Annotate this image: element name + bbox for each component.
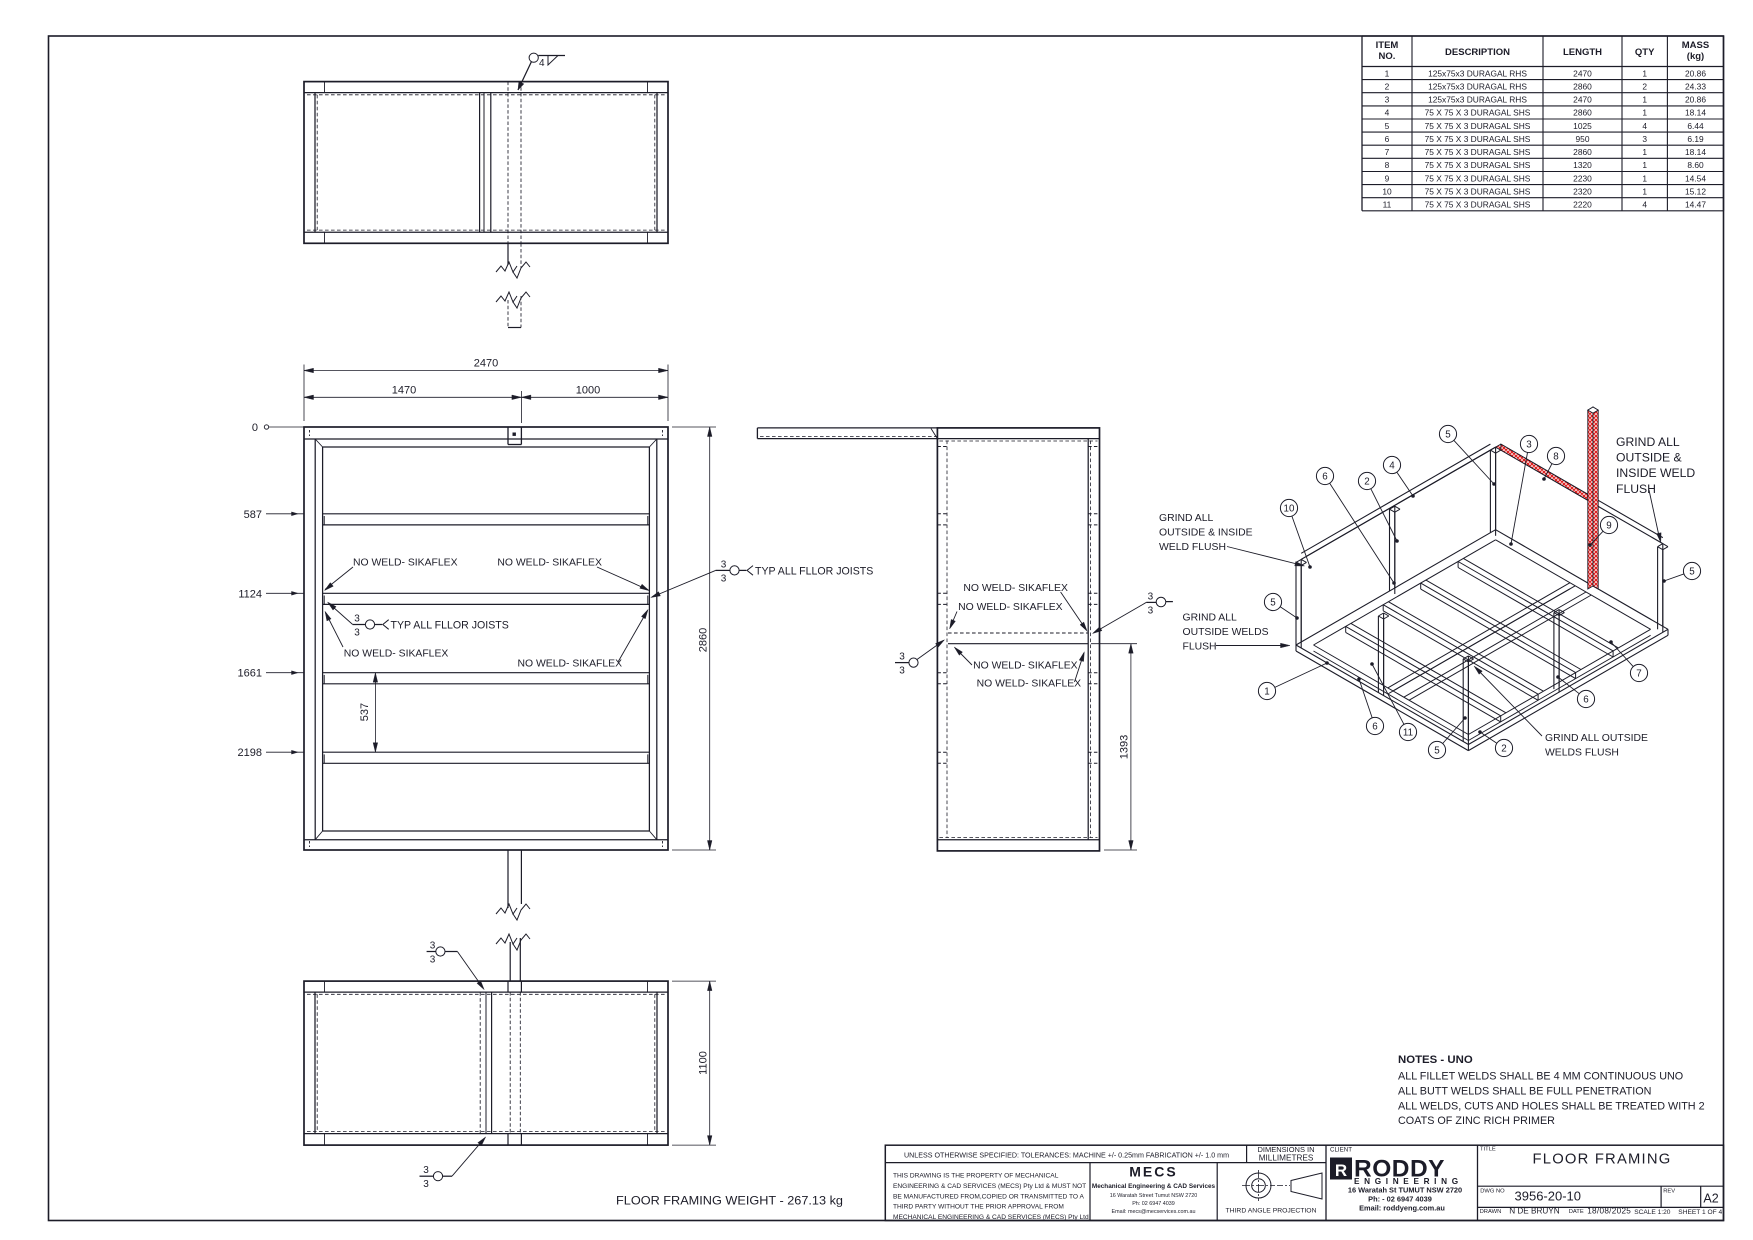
svg-text:18/08/2025: 18/08/2025 xyxy=(1587,1206,1631,1215)
svg-text:1: 1 xyxy=(1385,68,1390,78)
svg-text:ENGINEERING & CAD SERVICES (ME: ENGINEERING & CAD SERVICES (MECS) Pty Lt… xyxy=(893,1183,1086,1190)
svg-text:1: 1 xyxy=(1642,160,1647,170)
svg-text:1: 1 xyxy=(1642,108,1647,118)
svg-text:125x75x3 DURAGAL RHS: 125x75x3 DURAGAL RHS xyxy=(1428,95,1527,105)
svg-text:NOTES - UNO: NOTES - UNO xyxy=(1398,1054,1473,1066)
svg-text:FLOOR FRAMING: FLOOR FRAMING xyxy=(1533,1152,1672,1168)
svg-text:950: 950 xyxy=(1576,134,1590,144)
svg-text:5: 5 xyxy=(1434,746,1440,757)
svg-text:9: 9 xyxy=(1385,173,1390,183)
svg-text:UNLESS OTHERWISE SPECIFIED: TO: UNLESS OTHERWISE SPECIFIED: TOLERANCES: … xyxy=(904,1152,1229,1159)
svg-text:2470: 2470 xyxy=(474,358,498,370)
svg-text:2230: 2230 xyxy=(1573,173,1592,183)
svg-text:3: 3 xyxy=(423,1179,429,1190)
svg-text:4: 4 xyxy=(1389,461,1395,472)
svg-text:3: 3 xyxy=(354,628,360,639)
svg-text:SHEET 1 OF 4: SHEET 1 OF 4 xyxy=(1678,1209,1722,1216)
svg-text:GRIND ALL: GRIND ALL xyxy=(1616,435,1680,449)
svg-text:2: 2 xyxy=(1364,477,1369,488)
svg-text:WELDS FLUSH: WELDS FLUSH xyxy=(1545,748,1619,759)
svg-text:MECHANICAL ENGINEERING & CAD S: MECHANICAL ENGINEERING & CAD SERVICES (M… xyxy=(893,1214,1089,1221)
svg-text:3: 3 xyxy=(354,614,360,625)
svg-text:0: 0 xyxy=(252,422,258,434)
svg-text:GRIND ALL OUTSIDE: GRIND ALL OUTSIDE xyxy=(1545,733,1648,744)
svg-text:WELD FLUSH: WELD FLUSH xyxy=(1159,542,1226,553)
svg-text:3956-20-10: 3956-20-10 xyxy=(1515,1189,1582,1204)
svg-text:1: 1 xyxy=(1642,95,1647,105)
svg-text:DATE: DATE xyxy=(1569,1209,1584,1215)
svg-text:NO WELD- SIKAFLEX: NO WELD- SIKAFLEX xyxy=(958,602,1063,613)
svg-text:CLIENT: CLIENT xyxy=(1330,1146,1352,1153)
svg-text:75 X 75 X 3 DURAGAL SHS: 75 X 75 X 3 DURAGAL SHS xyxy=(1425,173,1531,183)
svg-text:1: 1 xyxy=(1642,68,1647,78)
svg-text:TYP ALL FLLOR JOISTS: TYP ALL FLLOR JOISTS xyxy=(391,619,509,631)
svg-text:3: 3 xyxy=(1526,440,1532,451)
svg-text:N DE BRUYN: N DE BRUYN xyxy=(1509,1206,1560,1215)
svg-text:1: 1 xyxy=(1264,687,1269,698)
svg-text:125x75x3 DURAGAL RHS: 125x75x3 DURAGAL RHS xyxy=(1428,81,1527,91)
svg-text:A2: A2 xyxy=(1703,1192,1718,1206)
svg-text:6: 6 xyxy=(1322,472,1328,483)
svg-text:15.12: 15.12 xyxy=(1685,186,1706,196)
svg-text:7: 7 xyxy=(1636,669,1641,680)
svg-text:8: 8 xyxy=(1553,452,1559,463)
svg-text:NO WELD- SIKAFLEX: NO WELD- SIKAFLEX xyxy=(963,583,1068,594)
svg-text:MECS: MECS xyxy=(1129,1164,1177,1180)
svg-text:Email: mecs@mecservices.com.au: Email: mecs@mecservices.com.au xyxy=(1112,1209,1196,1215)
svg-text:20.86: 20.86 xyxy=(1685,68,1706,78)
svg-text:10: 10 xyxy=(1382,186,1392,196)
svg-text:QTY: QTY xyxy=(1635,47,1655,58)
svg-text:MILLIMETRES: MILLIMETRES xyxy=(1259,1154,1314,1163)
svg-text:18.14: 18.14 xyxy=(1685,108,1706,118)
svg-text:FLUSH: FLUSH xyxy=(1183,642,1217,653)
svg-text:6.44: 6.44 xyxy=(1687,121,1704,131)
svg-text:NO WELD- SIKAFLEX: NO WELD- SIKAFLEX xyxy=(518,659,623,670)
svg-text:5: 5 xyxy=(1270,598,1276,609)
svg-text:16 Waratah St TUMUT NSW 2720: 16 Waratah St TUMUT NSW 2720 xyxy=(1348,1186,1462,1195)
svg-text:3: 3 xyxy=(1148,591,1154,602)
svg-text:2: 2 xyxy=(1385,81,1390,91)
svg-text:2: 2 xyxy=(1642,81,1647,91)
svg-text:9: 9 xyxy=(1606,521,1611,532)
svg-text:1393: 1393 xyxy=(1119,735,1131,759)
svg-text:1124: 1124 xyxy=(238,588,262,600)
svg-text:Ph: 02 6947 4039: Ph: 02 6947 4039 xyxy=(1132,1201,1175,1207)
svg-text:6: 6 xyxy=(1583,695,1589,706)
svg-text:1: 1 xyxy=(1642,186,1647,196)
svg-text:NO WELD- SIKAFLEX: NO WELD- SIKAFLEX xyxy=(344,649,449,660)
svg-text:THIRD PARTY WITHOUT THE PRIOR: THIRD PARTY WITHOUT THE PRIOR APPROVAL F… xyxy=(893,1204,1064,1211)
svg-text:Email: roddyeng.com.au: Email: roddyeng.com.au xyxy=(1359,1204,1445,1213)
svg-text:75 X 75 X 3 DURAGAL SHS: 75 X 75 X 3 DURAGAL SHS xyxy=(1425,121,1531,131)
svg-text:LENGTH: LENGTH xyxy=(1563,47,1602,58)
svg-text:GRIND ALL: GRIND ALL xyxy=(1159,513,1214,524)
svg-text:6: 6 xyxy=(1372,722,1378,733)
svg-text:75 X 75 X 3 DURAGAL SHS: 75 X 75 X 3 DURAGAL SHS xyxy=(1425,200,1531,210)
svg-text:24.33: 24.33 xyxy=(1685,81,1706,91)
svg-text:16 Waratah Street Tumut NSW 27: 16 Waratah Street Tumut NSW 2720 xyxy=(1110,1193,1198,1199)
svg-text:ALL FILLET WELDS SHALL BE 4 MM: ALL FILLET WELDS SHALL BE 4 MM CONTINUOU… xyxy=(1398,1071,1683,1083)
svg-text:GRIND ALL: GRIND ALL xyxy=(1183,613,1238,624)
svg-text:2860: 2860 xyxy=(1573,108,1592,118)
svg-text:1661: 1661 xyxy=(238,668,262,680)
svg-text:OUTSIDE & INSIDE: OUTSIDE & INSIDE xyxy=(1159,528,1253,539)
svg-text:Ph: - 02 6947 4039: Ph: - 02 6947 4039 xyxy=(1368,1195,1432,1204)
svg-text:14.54: 14.54 xyxy=(1685,173,1706,183)
svg-text:75 X 75 X 3 DURAGAL SHS: 75 X 75 X 3 DURAGAL SHS xyxy=(1425,108,1531,118)
svg-text:2470: 2470 xyxy=(1573,68,1592,78)
svg-text:R: R xyxy=(1335,1161,1347,1180)
svg-text:3: 3 xyxy=(721,573,727,584)
svg-text:10: 10 xyxy=(1284,504,1295,515)
svg-text:NO WELD- SIKAFLEX: NO WELD- SIKAFLEX xyxy=(497,558,602,569)
svg-text:11: 11 xyxy=(1383,200,1392,210)
svg-text:11: 11 xyxy=(1403,728,1413,739)
svg-text:FLOOR FRAMING WEIGHT - 267.: FLOOR FRAMING WEIGHT - 267.13 kg xyxy=(616,1194,843,1208)
svg-text:ITEM: ITEM xyxy=(1376,40,1399,51)
svg-text:3: 3 xyxy=(423,1165,429,1176)
svg-text:REV: REV xyxy=(1663,1188,1675,1194)
svg-text:2860: 2860 xyxy=(1573,147,1592,157)
svg-text:1025: 1025 xyxy=(1573,121,1592,131)
svg-text:DWG NO: DWG NO xyxy=(1480,1188,1505,1194)
svg-text:1: 1 xyxy=(1642,173,1647,183)
svg-text:1470: 1470 xyxy=(392,384,416,396)
svg-text:COATS OF ZINC RICH PRIMER: COATS OF ZINC RICH PRIMER xyxy=(1398,1115,1555,1127)
svg-text:2: 2 xyxy=(1501,744,1506,755)
svg-text:(kg): (kg) xyxy=(1687,51,1704,62)
svg-text:TYP ALL FLLOR JOISTS: TYP ALL FLLOR JOISTS xyxy=(755,565,873,577)
svg-text:5: 5 xyxy=(1689,567,1695,578)
svg-text:3: 3 xyxy=(1385,95,1390,105)
svg-text:3: 3 xyxy=(721,559,727,570)
svg-text:TITLE: TITLE xyxy=(1480,1147,1496,1153)
svg-text:8.60: 8.60 xyxy=(1687,160,1704,170)
svg-text:6: 6 xyxy=(1385,134,1390,144)
svg-text:1: 1 xyxy=(1642,147,1647,157)
svg-text:4: 4 xyxy=(1642,200,1647,210)
svg-text:537: 537 xyxy=(359,703,371,721)
svg-text:20.86: 20.86 xyxy=(1685,95,1706,105)
svg-text:MASS: MASS xyxy=(1682,40,1709,51)
svg-text:14.47: 14.47 xyxy=(1685,200,1706,210)
svg-text:2860: 2860 xyxy=(1573,81,1592,91)
svg-text:75 X 75 X 3 DURAGAL SHS: 75 X 75 X 3 DURAGAL SHS xyxy=(1425,147,1531,157)
svg-text:INSIDE WELD: INSIDE WELD xyxy=(1616,466,1695,480)
svg-text:2470: 2470 xyxy=(1573,95,1592,105)
svg-text:1320: 1320 xyxy=(1573,160,1592,170)
svg-text:6.19: 6.19 xyxy=(1687,134,1704,144)
svg-text:3: 3 xyxy=(430,955,436,966)
svg-text:DRAWN: DRAWN xyxy=(1480,1209,1502,1215)
svg-text:NO WELD- SIKAFLEX: NO WELD- SIKAFLEX xyxy=(973,661,1078,672)
svg-text:Mechanical Engineering & CAD S: Mechanical Engineering & CAD Services xyxy=(1092,1183,1216,1190)
svg-text:18.14: 18.14 xyxy=(1685,147,1706,157)
svg-text:2220: 2220 xyxy=(1573,200,1592,210)
svg-text:ALL BUTT WELDS SHALL BE FULL P: ALL BUTT WELDS SHALL BE FULL PENETRATION xyxy=(1398,1085,1651,1097)
svg-text:3: 3 xyxy=(1642,134,1647,144)
svg-text:125x75x3 DURAGAL RHS: 125x75x3 DURAGAL RHS xyxy=(1428,68,1527,78)
svg-text:NO WELD- SIKAFLEX: NO WELD- SIKAFLEX xyxy=(977,679,1082,690)
svg-text:THIS DRAWING IS THE PROPERTY O: THIS DRAWING IS THE PROPERTY OF MECHANIC… xyxy=(893,1173,1059,1180)
svg-text:DESCRIPTION: DESCRIPTION xyxy=(1445,47,1510,58)
svg-text:3: 3 xyxy=(430,941,436,952)
svg-text:2860: 2860 xyxy=(698,628,710,652)
svg-text:5: 5 xyxy=(1385,121,1390,131)
svg-text:OUTSIDE WELDS: OUTSIDE WELDS xyxy=(1183,627,1269,638)
svg-text:NO WELD- SIKAFLEX: NO WELD- SIKAFLEX xyxy=(353,558,458,569)
svg-text:5: 5 xyxy=(1445,430,1451,441)
svg-text:BE MANUFACTURED FROM,COPIED OR: BE MANUFACTURED FROM,COPIED OR TRANSMITT… xyxy=(893,1193,1084,1200)
svg-text:8: 8 xyxy=(1385,160,1390,170)
svg-text:1100: 1100 xyxy=(698,1051,710,1075)
svg-text:3: 3 xyxy=(899,652,905,663)
svg-text:3: 3 xyxy=(1148,605,1154,616)
svg-text:1000: 1000 xyxy=(576,384,600,396)
svg-text:2320: 2320 xyxy=(1573,186,1592,196)
svg-text:3: 3 xyxy=(899,666,905,677)
svg-text:75 X 75 X 3 DURAGAL SHS: 75 X 75 X 3 DURAGAL SHS xyxy=(1425,160,1531,170)
svg-text:2198: 2198 xyxy=(238,747,262,759)
svg-text:4: 4 xyxy=(539,58,545,69)
svg-text:THIRD ANGLE PROJECTION: THIRD ANGLE PROJECTION xyxy=(1225,1208,1316,1215)
svg-text:NO.: NO. xyxy=(1379,51,1396,62)
svg-text:ALL WELDS, CUTS AND HOLES SHAL: ALL WELDS, CUTS AND HOLES SHALL BE TREAT… xyxy=(1398,1100,1705,1112)
svg-text:75 X 75 X 3 DURAGAL SHS: 75 X 75 X 3 DURAGAL SHS xyxy=(1425,186,1531,196)
svg-text:SCALE 1:20: SCALE 1:20 xyxy=(1634,1209,1671,1216)
svg-text:OUTSIDE &: OUTSIDE & xyxy=(1616,451,1682,465)
svg-text:587: 587 xyxy=(244,509,262,521)
svg-text:4: 4 xyxy=(1642,121,1647,131)
svg-text:75 X 75 X 3 DURAGAL SHS: 75 X 75 X 3 DURAGAL SHS xyxy=(1425,134,1531,144)
svg-text:4: 4 xyxy=(1385,108,1390,118)
svg-text:7: 7 xyxy=(1385,147,1390,157)
